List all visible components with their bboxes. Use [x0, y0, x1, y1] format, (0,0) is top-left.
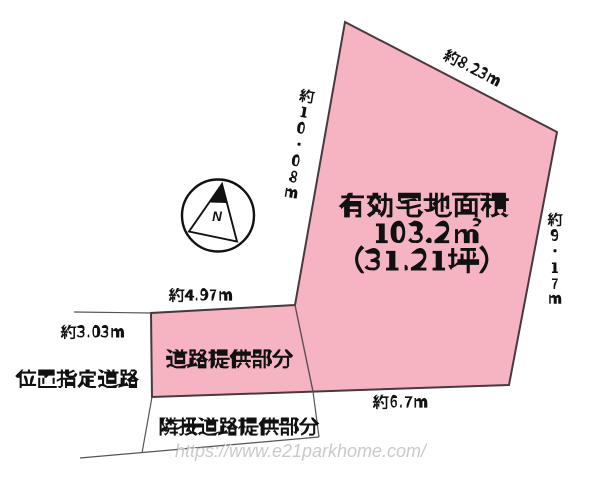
svg-text:https://www.e21parkhome.com/: https://www.e21parkhome.com/ — [175, 441, 428, 461]
svg-text:N: N — [212, 209, 222, 224]
